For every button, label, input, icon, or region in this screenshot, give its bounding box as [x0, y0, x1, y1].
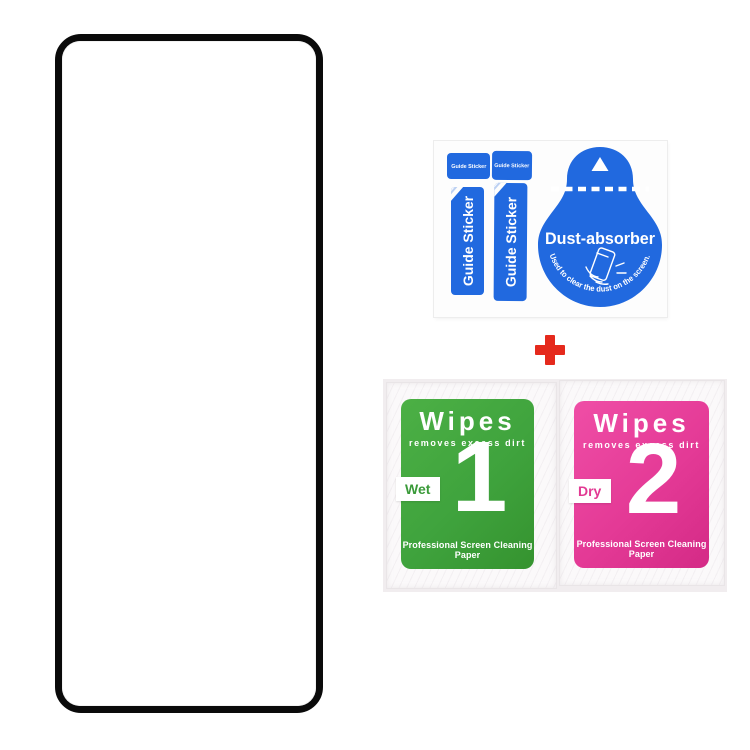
wipe-packet-dry: Wipes removes excess dirt 2 Dry Professi… — [559, 380, 725, 586]
wipe-footer: Professional Screen Cleaning Paper — [401, 540, 534, 560]
guide-sticker-strip-label: Guide Sticker — [460, 196, 476, 286]
screen-protector-outline — [55, 34, 323, 713]
wipe-packet-wet: Wipes removes excess dirt 1 Wet Professi… — [386, 382, 557, 589]
wipe-footer: Professional Screen Cleaning Paper — [574, 539, 709, 559]
guide-sticker-tab-label: Guide Sticker — [494, 162, 529, 168]
guide-sticker-tab-1: Guide Sticker — [447, 153, 490, 179]
wipe-wet-tag: Wet — [396, 477, 440, 501]
wipes-photo: Wipes removes excess dirt 1 Wet Professi… — [383, 379, 727, 592]
accessories-card: Guide Sticker Guide Sticker Guide Sticke… — [434, 141, 667, 317]
wipe-dry-tag: Dry — [569, 479, 611, 503]
product-photo: Guide Sticker Guide Sticker Guide Sticke… — [0, 0, 750, 750]
screen-protector-glass — [62, 41, 316, 706]
guide-sticker-tab-2: Guide Sticker — [492, 151, 532, 180]
plus-icon — [535, 335, 565, 365]
guide-sticker-strip-1: Guide Sticker — [451, 187, 484, 295]
dust-absorber: Dust-absorber Used to clear the dust on … — [536, 145, 664, 311]
guide-sticker-strip-label: Guide Sticker — [502, 197, 519, 287]
dust-absorber-title: Dust-absorber — [545, 229, 655, 248]
guide-sticker-tab-label: Guide Sticker — [451, 163, 486, 169]
wipe-label-wet: Wipes removes excess dirt 1 Wet Professi… — [401, 399, 534, 569]
wipe-label-dry: Wipes removes excess dirt 2 Dry Professi… — [574, 401, 709, 568]
guide-sticker-strip-2: Guide Sticker — [494, 183, 528, 301]
